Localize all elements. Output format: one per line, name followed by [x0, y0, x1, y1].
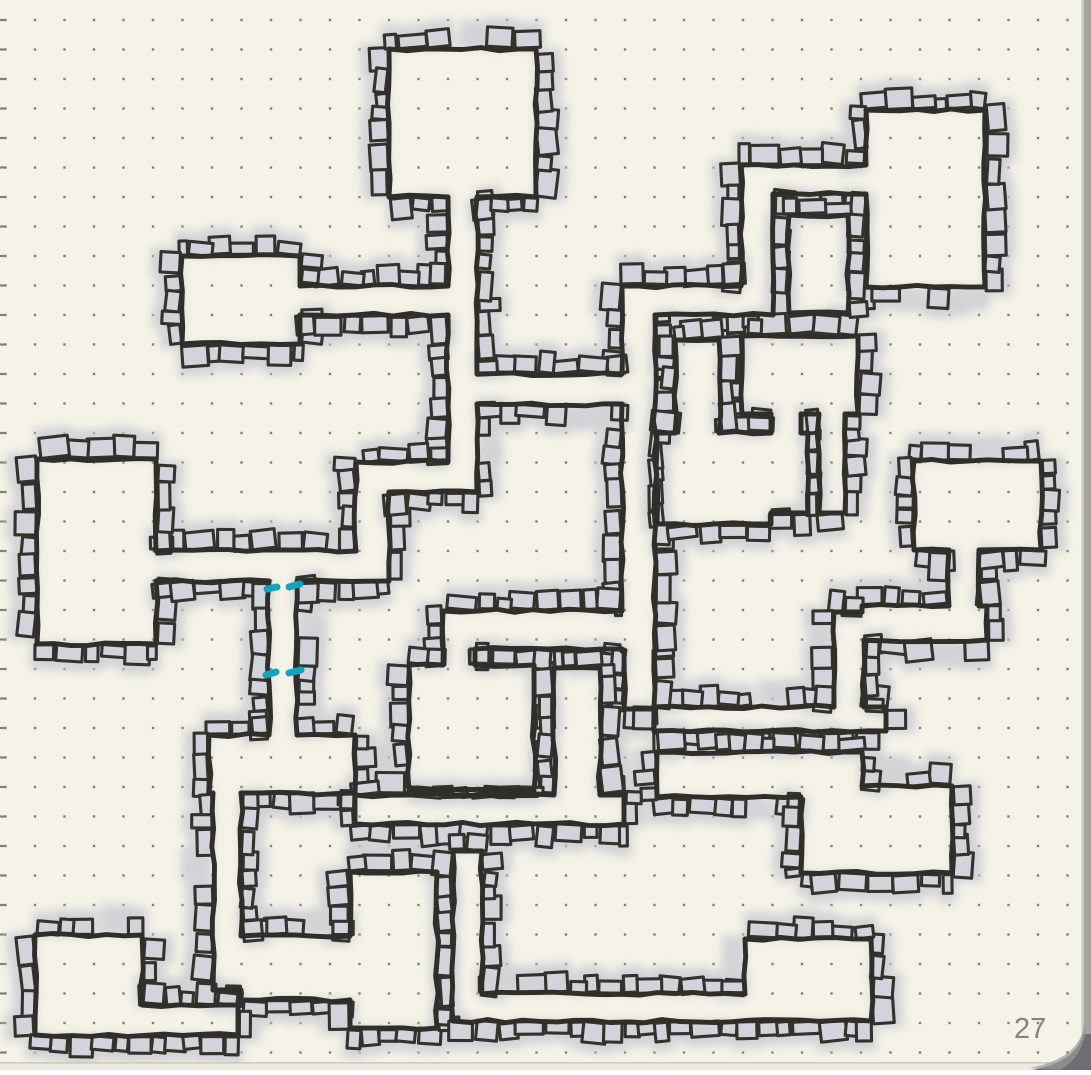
- svg-text:27: 27: [1014, 1013, 1046, 1045]
